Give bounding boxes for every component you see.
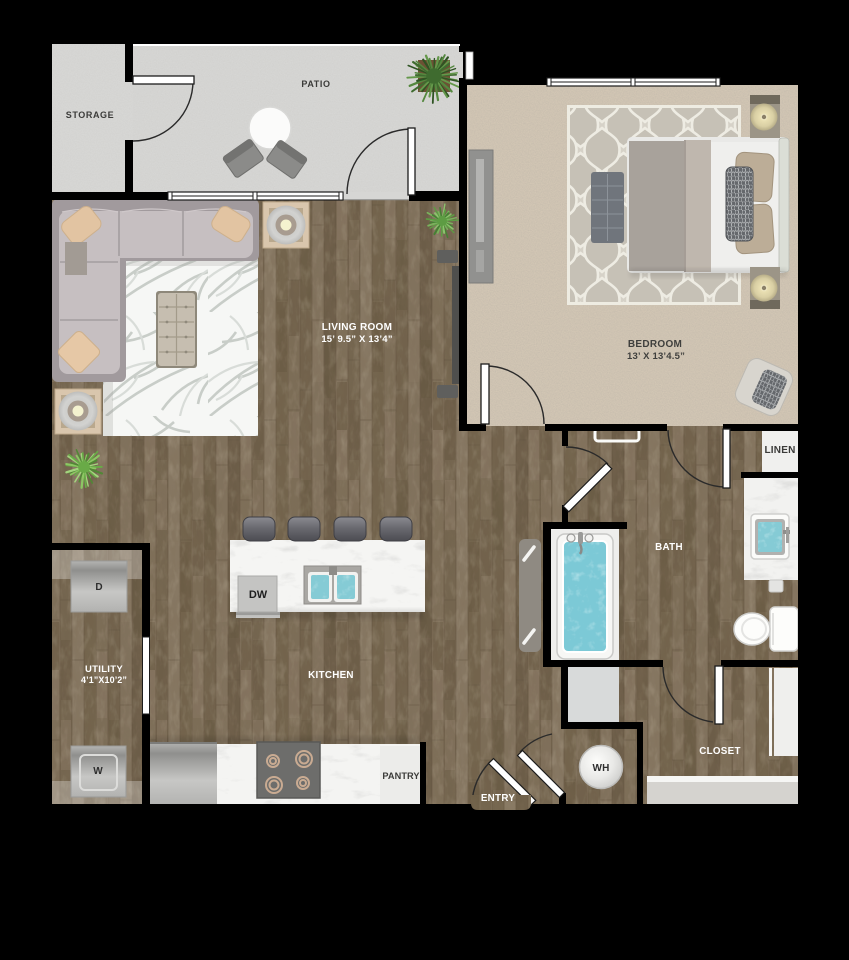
svg-text:LINEN: LINEN — [765, 445, 796, 456]
svg-text:DW: DW — [249, 589, 268, 601]
svg-text:CLOSET: CLOSET — [699, 746, 741, 757]
svg-text:STORAGE: STORAGE — [66, 110, 115, 120]
svg-text:WH: WH — [592, 763, 609, 774]
svg-text:UTILITY: UTILITY — [85, 664, 123, 675]
svg-text:PATIO: PATIO — [301, 79, 330, 89]
svg-text:PANTRY: PANTRY — [382, 771, 419, 781]
svg-text:BATH: BATH — [655, 542, 683, 553]
svg-text:13’ X 13’4.5”: 13’ X 13’4.5” — [627, 351, 685, 362]
svg-text:LIVING ROOM: LIVING ROOM — [322, 322, 393, 333]
svg-text:ENTRY: ENTRY — [481, 793, 516, 804]
svg-text:KITCHEN: KITCHEN — [308, 670, 354, 681]
svg-text:15’ 9.5” X 13’4”: 15’ 9.5” X 13’4” — [321, 334, 392, 345]
svg-text:BEDROOM: BEDROOM — [628, 339, 682, 350]
svg-text:W: W — [93, 766, 103, 777]
svg-text:4’1”X10’2”: 4’1”X10’2” — [81, 675, 127, 685]
svg-text:D: D — [95, 582, 102, 593]
